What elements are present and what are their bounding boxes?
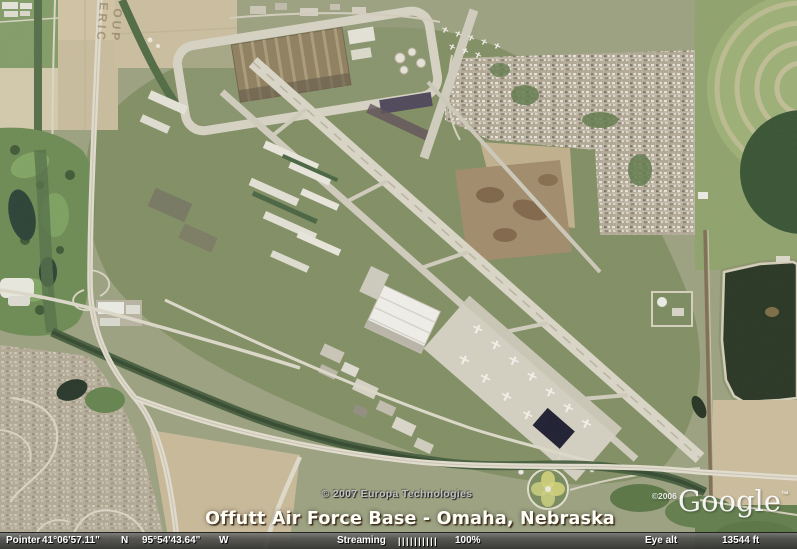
grain-overlay bbox=[0, 0, 797, 549]
pointer-label: Pointer bbox=[6, 535, 40, 546]
streaming-label: Streaming bbox=[337, 535, 386, 546]
longitude-hemisphere: W bbox=[219, 535, 228, 546]
streaming-percent: 100% bbox=[455, 535, 481, 546]
google-earth-viewport: ERIC OUP © 2007 Europa Technologies Offu… bbox=[0, 0, 797, 549]
latitude-hemisphere: N bbox=[121, 535, 128, 546]
eye-alt-value: 13544 ft bbox=[722, 535, 759, 546]
status-bar: Pointer 41°06'57.11" N 95°54'43.64" W St… bbox=[0, 532, 797, 549]
pointer-longitude-value: 95°54'43.64" bbox=[142, 535, 200, 546]
satellite-imagery-canvas[interactable]: ERIC OUP bbox=[0, 0, 797, 549]
pointer-latitude-value: 41°06'57.11" bbox=[42, 535, 100, 546]
streaming-progress-bars: |||||||||| bbox=[398, 536, 438, 546]
eye-alt-label: Eye alt bbox=[645, 535, 677, 546]
